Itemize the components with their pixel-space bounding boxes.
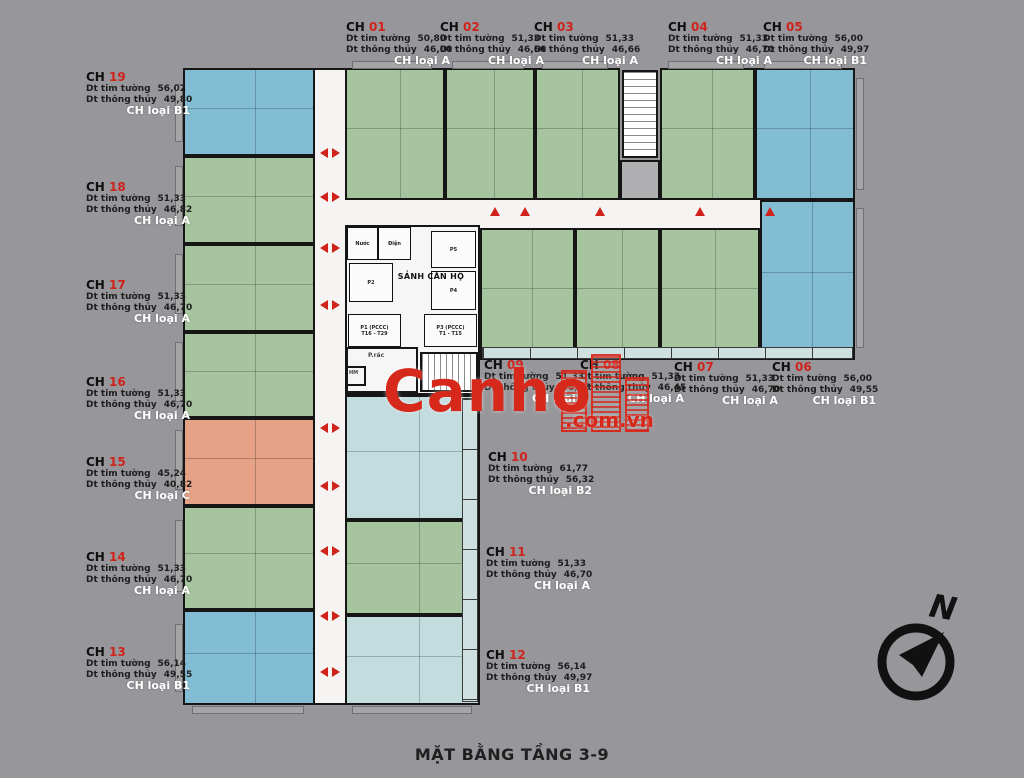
apartment-type: CH loại B1	[486, 683, 592, 696]
apartment-label-ch-14: CH 14Dt tim tường51,33Dt thông thủy46,70…	[86, 550, 192, 598]
water-room: Nước	[347, 227, 378, 260]
arrow-right-icon	[332, 300, 340, 310]
arrow-left-icon	[320, 243, 328, 253]
apartment-type: CH loại B1	[763, 55, 869, 68]
apartment-type: CH loại B1	[772, 395, 878, 408]
arrow-right-icon	[332, 546, 340, 556]
apartment-label-ch-11: CH 11Dt tim tường51,33Dt thông thủy46,70…	[486, 545, 592, 593]
apartment-code: CH 07	[674, 360, 780, 374]
apartment-code: CH 05	[763, 20, 869, 34]
apartment-type: CH loại A	[486, 580, 592, 593]
stairwell	[622, 70, 658, 158]
apartment-label-ch-17: CH 17Dt tim tường51,33Dt thông thủy46,70…	[86, 278, 192, 326]
apartment-unit-ch-14	[183, 506, 315, 610]
arrow-left-icon	[320, 611, 328, 621]
direction-arrow	[320, 243, 340, 253]
direction-arrow-up-icon	[695, 207, 705, 216]
fire-elevator-p1: P1 (PCCC) T16 - T29	[348, 314, 401, 347]
floor-plan-page: Nước Điện P5 P2 P4 P1 (PCCC) T16 - T29 P…	[0, 0, 1024, 778]
area-tim-tuong: Dt tim tường56,02	[86, 84, 192, 95]
apartment-label-ch-06: CH 06Dt tim tường56,00Dt thông thủy49,55…	[772, 360, 878, 408]
apartment-type: CH loại A	[440, 55, 546, 68]
apartment-label-ch-04: CH 04Dt tim tường51,33Dt thông thủy46,70…	[668, 20, 774, 68]
apartment-code: CH 18	[86, 180, 192, 194]
apartment-unit-ch-01	[345, 68, 445, 200]
arrow-right-icon	[332, 423, 340, 433]
area-tim-tuong: Dt tim tường56,00	[772, 374, 878, 385]
apartment-type: CH loại B1	[86, 680, 192, 693]
apartment-unit-ch-05	[755, 68, 855, 200]
area-tim-tuong: Dt tim tường45,24	[86, 469, 192, 480]
watermark-suffix: .com.vn	[565, 408, 654, 432]
apartment-code: CH 12	[486, 648, 592, 662]
arrow-left-icon	[320, 148, 328, 158]
apartment-unit-ch-12	[345, 615, 480, 705]
apartment-code: CH 01	[346, 20, 452, 34]
apartment-type: CH loại A	[86, 410, 192, 423]
area-tim-tuong: Dt tim tường51,33	[486, 559, 592, 570]
corridor-horizontal	[345, 200, 795, 228]
compass-north-label: N	[927, 586, 960, 628]
area-tim-tuong: Dt tim tường56,14	[486, 662, 592, 673]
apartment-code: CH 19	[86, 70, 192, 84]
apartment-type: CH loại B2	[488, 485, 594, 498]
apartment-unit-ch-09	[480, 228, 575, 360]
elevator-p2: P2	[349, 263, 393, 302]
hm-room-label: HM	[349, 370, 358, 376]
balcony	[352, 706, 472, 714]
direction-arrow	[320, 423, 340, 433]
direction-arrow	[320, 611, 340, 621]
direction-arrow-up-icon	[595, 207, 605, 216]
corridor-vertical	[315, 68, 345, 705]
apartment-label-ch-13: CH 13Dt tim tường56,14Dt thông thủy49,55…	[86, 645, 192, 693]
compass-icon: N	[866, 582, 966, 716]
apartment-label-ch-07: CH 07Dt tim tường51,33Dt thông thủy46,70…	[674, 360, 780, 408]
direction-arrow	[320, 300, 340, 310]
arrow-left-icon	[320, 667, 328, 677]
apartment-code: CH 10	[488, 450, 594, 464]
area-tim-tuong: Dt tim tường61,77	[488, 464, 594, 475]
utility-shaft	[620, 160, 660, 200]
apartment-unit-ch-02	[445, 68, 535, 200]
apartment-code: CH 04	[668, 20, 774, 34]
apartment-type: CH loại B1	[86, 105, 192, 118]
watermark-brand: Canho	[383, 362, 592, 420]
fire-elevator-p3: P3 (PCCC) T1 - T15	[424, 314, 477, 347]
direction-arrow-up-icon	[520, 207, 530, 216]
compass-needle	[899, 632, 944, 677]
apartment-unit-ch-07	[660, 228, 760, 360]
apartment-unit-ch-06	[760, 200, 855, 360]
apartment-type: CH loại A	[346, 55, 452, 68]
apartment-type: CH loại A	[86, 313, 192, 326]
area-tim-tuong: Dt tim tường51,33	[534, 34, 640, 45]
electric-room: Điện	[378, 227, 411, 260]
apartment-code: CH 14	[86, 550, 192, 564]
arrow-right-icon	[332, 243, 340, 253]
arrow-right-icon	[332, 667, 340, 677]
direction-arrow	[320, 481, 340, 491]
apartment-unit-ch-11	[345, 520, 480, 615]
lobby-label: SẢNH CĂN HỘ	[385, 272, 477, 281]
apartment-unit-ch-17	[183, 244, 315, 332]
apartment-type: CH loại C	[86, 490, 192, 503]
apartment-label-ch-01: CH 01Dt tim tường50,80Dt thông thủy46,00…	[346, 20, 452, 68]
apartment-code: CH 03	[534, 20, 640, 34]
apartment-code: CH 16	[86, 375, 192, 389]
elevator-p5: P5	[431, 231, 476, 268]
arrow-left-icon	[320, 546, 328, 556]
apartment-code: CH 06	[772, 360, 878, 374]
apartment-type: CH loại A	[86, 215, 192, 228]
trash-room-label: P.rác	[368, 352, 384, 359]
area-tim-tuong: Dt tim tường51,33	[86, 389, 192, 400]
area-tim-tuong: Dt tim tường50,80	[346, 34, 452, 45]
apartment-label-ch-15: CH 15Dt tim tường45,24Dt thông thủy40,82…	[86, 455, 192, 503]
apartment-label-ch-18: CH 18Dt tim tường51,33Dt thông thủy46,82…	[86, 180, 192, 228]
arrow-left-icon	[320, 300, 328, 310]
area-tim-tuong: Dt tim tường51,33	[86, 194, 192, 205]
apartment-unit-ch-19	[183, 68, 315, 156]
arrow-right-icon	[332, 192, 340, 202]
apartment-label-ch-16: CH 16Dt tim tường51,33Dt thông thủy46,70…	[86, 375, 192, 423]
apartment-code: CH 11	[486, 545, 592, 559]
area-tim-tuong: Dt tim tường56,14	[86, 659, 192, 670]
direction-arrow	[320, 192, 340, 202]
arrow-right-icon	[332, 148, 340, 158]
apartment-code: CH 02	[440, 20, 546, 34]
area-tim-tuong: Dt tim tường56,00	[763, 34, 869, 45]
area-tim-tuong: Dt tim tường51,33	[674, 374, 780, 385]
apartment-label-ch-02: CH 02Dt tim tường51,33Dt thông thủy46,66…	[440, 20, 546, 68]
apartment-label-ch-19: CH 19Dt tim tường56,02Dt thông thủy49,80…	[86, 70, 192, 118]
apartment-unit-ch-18	[183, 156, 315, 244]
direction-arrow-up-icon	[765, 207, 775, 216]
arrow-left-icon	[320, 192, 328, 202]
apartment-label-ch-10: CH 10Dt tim tường61,77Dt thông thủy56,32…	[488, 450, 594, 498]
apartment-unit-ch-04	[660, 68, 755, 200]
apartment-unit-ch-08	[575, 228, 660, 360]
apartment-type: CH loại A	[86, 585, 192, 598]
balcony-strip	[462, 398, 478, 702]
apartment-unit-ch-15	[183, 418, 315, 506]
direction-arrow	[320, 148, 340, 158]
direction-arrow	[320, 546, 340, 556]
arrow-right-icon	[332, 611, 340, 621]
area-tim-tuong: Dt tim tường51,33	[440, 34, 546, 45]
plan-title: MẶT BẰNG TẦNG 3-9	[0, 745, 1024, 764]
hm-room	[346, 366, 366, 386]
arrow-right-icon	[332, 481, 340, 491]
area-tim-tuong: Dt tim tường51,33	[668, 34, 774, 45]
direction-arrow	[320, 667, 340, 677]
apartment-unit-ch-03	[535, 68, 620, 200]
apartment-code: CH 17	[86, 278, 192, 292]
apartment-type: CH loại A	[534, 55, 640, 68]
area-tim-tuong: Dt tim tường51,33	[86, 564, 192, 575]
arrow-left-icon	[320, 423, 328, 433]
apartment-label-ch-03: CH 03Dt tim tường51,33Dt thông thủy46,66…	[534, 20, 640, 68]
area-tim-tuong: Dt tim tường51,33	[86, 292, 192, 303]
apartment-unit-ch-13	[183, 610, 315, 705]
apartment-type: CH loại A	[668, 55, 774, 68]
apartment-code: CH 15	[86, 455, 192, 469]
apartment-type: CH loại A	[674, 395, 780, 408]
apartment-code: CH 13	[86, 645, 192, 659]
apartment-label-ch-12: CH 12Dt tim tường56,14Dt thông thủy49,97…	[486, 648, 592, 696]
direction-arrow-up-icon	[490, 207, 500, 216]
balcony	[856, 208, 864, 348]
balcony	[192, 706, 304, 714]
apartment-label-ch-05: CH 05Dt tim tường56,00Dt thông thủy49,97…	[763, 20, 869, 68]
apartment-unit-ch-16	[183, 332, 315, 418]
watermark-logo: Canho .com.vn	[383, 362, 653, 440]
balcony	[856, 78, 864, 190]
arrow-left-icon	[320, 481, 328, 491]
